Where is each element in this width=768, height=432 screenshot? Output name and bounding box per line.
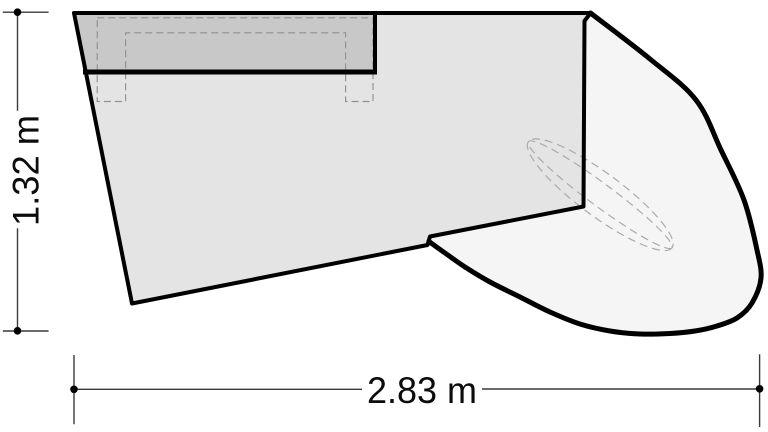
- svg-text:2.83 m: 2.83 m: [367, 370, 477, 411]
- svg-text:1.32 m: 1.32 m: [6, 115, 47, 226]
